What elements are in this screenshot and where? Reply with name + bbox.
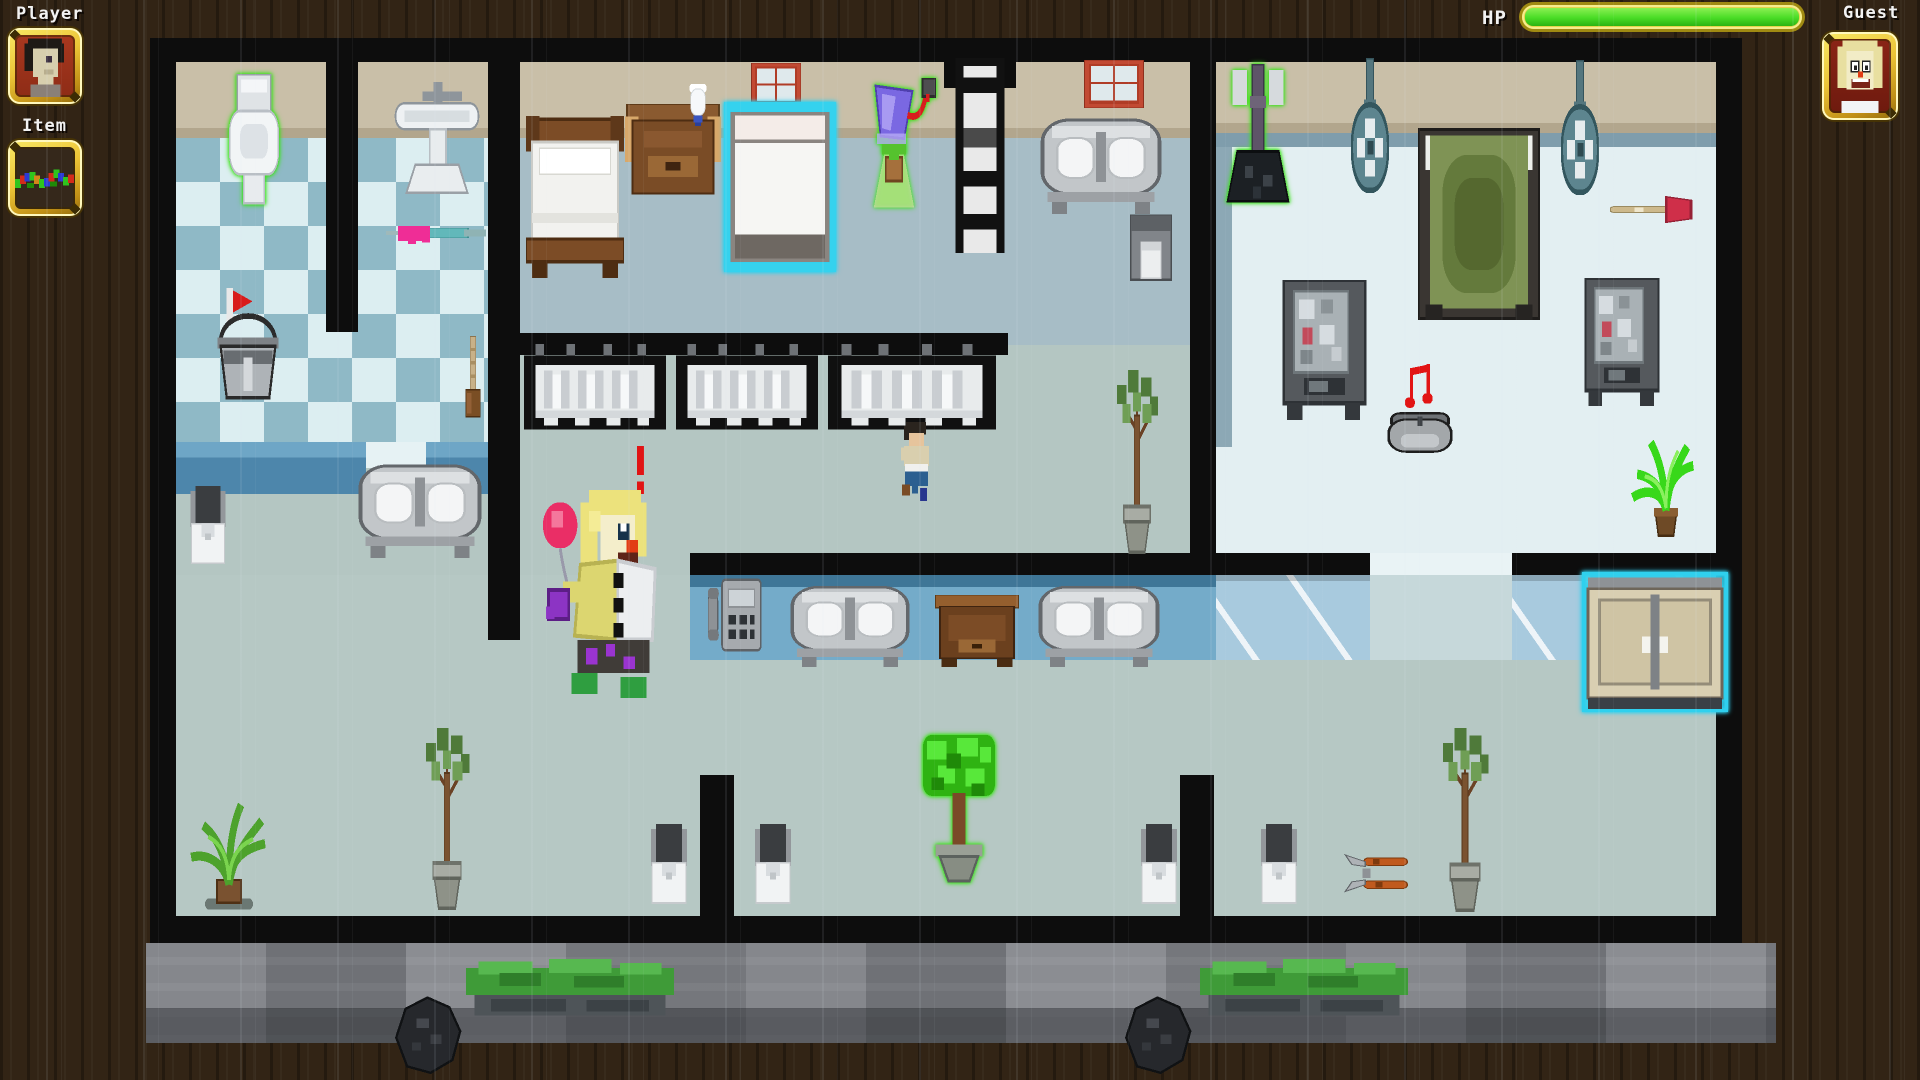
- highlighted-cabinet[interactable]: [1582, 572, 1728, 712]
- glowing-toilet[interactable]: [222, 74, 286, 206]
- shower-stall-1[interactable]: [524, 344, 666, 439]
- guest-label: Guest: [1843, 3, 1899, 23]
- guest-portrait: [1829, 39, 1891, 113]
- alert-exclamation: [629, 446, 652, 494]
- leafy-plant[interactable]: [186, 798, 272, 912]
- player-portrait-frame[interactable]: [8, 28, 82, 104]
- entity-layer: [0, 0, 1920, 1080]
- vending-machine-2[interactable]: [1584, 278, 1660, 406]
- pedestal-sink[interactable]: [392, 82, 482, 200]
- guest-avatar-icon: [1829, 39, 1891, 113]
- item-slot-frame[interactable]: [8, 140, 82, 216]
- wooden-bed[interactable]: [526, 116, 624, 278]
- payphone[interactable]: [708, 575, 762, 655]
- window-2: [1084, 60, 1144, 108]
- hedge-1: [466, 954, 674, 1018]
- potted-plant-bright[interactable]: [1628, 434, 1704, 540]
- item-icon: [15, 147, 75, 209]
- potted-tree-left[interactable]: [412, 724, 482, 912]
- ceiling-fan-2[interactable]: [1550, 60, 1610, 198]
- highlighted-bed[interactable]: [724, 102, 836, 272]
- pliers-item[interactable]: [1344, 854, 1410, 902]
- hp-bar: [1522, 5, 1802, 29]
- guest-clown[interactable]: [540, 490, 684, 698]
- metal-bench-2[interactable]: [1038, 582, 1160, 667]
- green-bed[interactable]: [1418, 128, 1540, 320]
- music-player[interactable]: [1386, 406, 1454, 458]
- glowing-topiary[interactable]: [906, 732, 1012, 884]
- metal-bench-1[interactable]: [790, 582, 910, 667]
- ladder[interactable]: [948, 58, 1012, 253]
- broom[interactable]: [455, 336, 491, 420]
- metal-bench-left[interactable]: [358, 460, 482, 558]
- toilet-bottom-3[interactable]: [1134, 824, 1184, 908]
- toilet-lower-left[interactable]: [184, 486, 232, 568]
- glowing-mop[interactable]: [1218, 64, 1298, 210]
- vase: [680, 84, 716, 132]
- potted-tree-right[interactable]: [1428, 724, 1502, 914]
- mop-bucket[interactable]: [210, 288, 286, 400]
- shower-stall-2[interactable]: [676, 344, 818, 439]
- vending-machine-1[interactable]: [1282, 280, 1367, 420]
- plunger-item[interactable]: [1610, 188, 1698, 232]
- item-label: Item: [22, 116, 67, 136]
- trash-bag-2: [1120, 996, 1198, 1076]
- npc-runner[interactable]: [892, 420, 942, 512]
- player-portrait: [15, 35, 75, 97]
- item-slot: [15, 147, 75, 209]
- player-label: Player: [16, 4, 83, 24]
- trash-bin[interactable]: [1128, 214, 1174, 284]
- syringe-item[interactable]: [386, 216, 486, 250]
- plant-lamp[interactable]: [852, 78, 936, 210]
- game-screen: Player Item HP Guest: [0, 0, 1920, 1080]
- music-note: [1404, 360, 1446, 412]
- ceiling-fan-1[interactable]: [1340, 58, 1400, 196]
- toilet-bottom-4[interactable]: [1254, 824, 1304, 908]
- player-avatar-icon: [15, 35, 75, 97]
- guest-portrait-frame[interactable]: [1822, 32, 1898, 120]
- hp-label: HP: [1482, 7, 1507, 29]
- trash-bag-1: [390, 996, 468, 1076]
- hedge-2: [1200, 954, 1408, 1018]
- wooden-table[interactable]: [935, 595, 1019, 667]
- metal-bed[interactable]: [1040, 114, 1162, 214]
- potted-tree-center[interactable]: [1104, 366, 1170, 556]
- toilet-bottom-2[interactable]: [748, 824, 798, 908]
- toilet-bottom-1[interactable]: [644, 824, 694, 908]
- hp-fill: [1525, 8, 1799, 26]
